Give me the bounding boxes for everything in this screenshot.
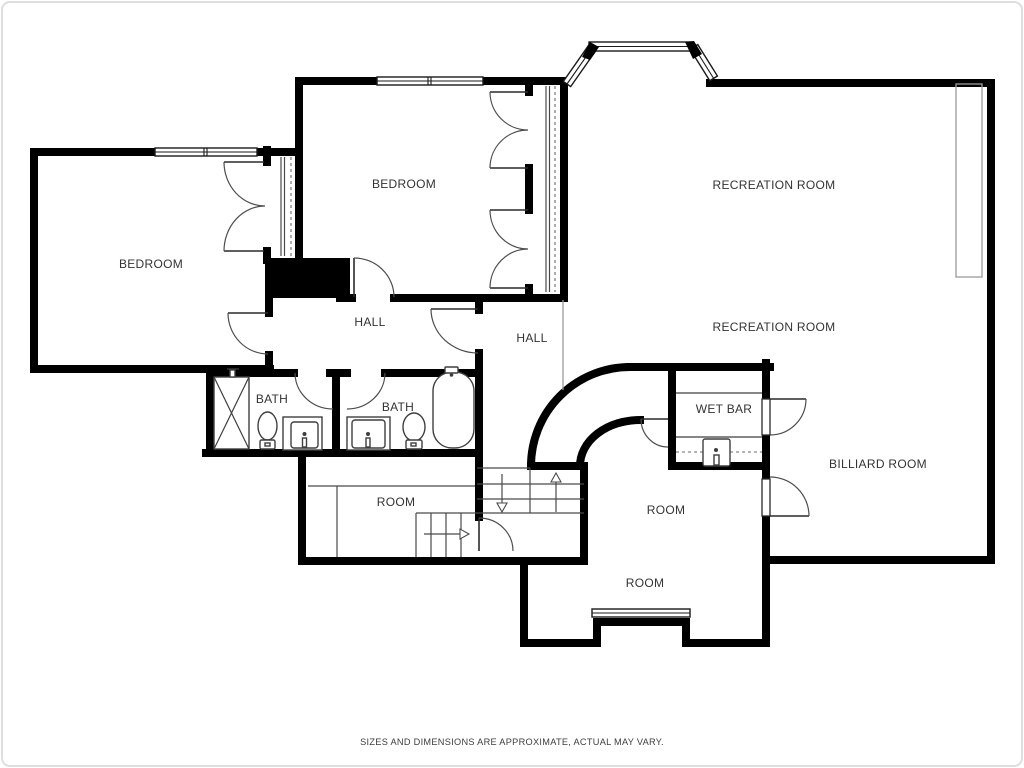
room-label-hall-east: HALL: [516, 331, 547, 345]
room-label-recreation-room-upper: RECREATION ROOM: [713, 178, 836, 192]
toilet-icon-west: [258, 412, 277, 449]
door-bath-east: [347, 373, 385, 409]
closet-double-door-north-upper: [490, 92, 528, 168]
room-label-room-west: ROOM: [377, 495, 416, 509]
walls: [34, 81, 991, 643]
room-label-bath-east: BATH: [382, 400, 414, 414]
room-label-room-south: ROOM: [626, 576, 665, 590]
window-west-bedroom: [155, 148, 257, 156]
door-billiard-lower: [762, 477, 809, 516]
door-bath-west: [295, 373, 333, 409]
closet-shelf-line-west: [281, 157, 285, 256]
sink-icon-east: [347, 417, 390, 450]
door-north-bedroom: [354, 258, 394, 297]
wall-curved-inner: [580, 420, 640, 466]
room-label-hall-west: HALL: [354, 315, 385, 329]
door-stair-landing: [479, 518, 513, 551]
closet-shelf-line-north: [546, 86, 550, 292]
wall-niche: [956, 84, 982, 277]
room-label-billiard-room: BILLIARD ROOM: [829, 457, 927, 471]
closet-double-door-west: [224, 162, 265, 251]
floor-plan-canvas: BEDROOM BEDROOM RECREATION ROOM RECREATI…: [0, 0, 1024, 768]
disclaimer-text: SIZES AND DIMENSIONS ARE APPROXIMATE, AC…: [360, 737, 664, 747]
window-south-room: [592, 609, 690, 617]
room-label-bath-west: BATH: [256, 392, 288, 406]
window-north-bedroom: [377, 77, 483, 85]
door-corridor: [641, 419, 668, 447]
stair-arrow-up-icon: [551, 473, 561, 482]
room-label-wet-bar: WET BAR: [696, 402, 753, 416]
solid-chase: [265, 258, 350, 298]
door-hall: [431, 309, 478, 353]
door-billiard-upper: [762, 399, 806, 435]
room-label-recreation-room-lower: RECREATION ROOM: [713, 320, 836, 334]
room-label-bedroom-north: BEDROOM: [372, 177, 436, 191]
closet-double-door-north-lower: [490, 210, 528, 288]
stair-arrow-right-icon: [460, 529, 469, 539]
wall-north-bedroom-left: [256, 81, 377, 152]
stair-treads-main: [477, 468, 584, 513]
bathtub-icon: [433, 367, 474, 448]
sink-icon-west: [283, 417, 322, 450]
bay-window-top: [589, 42, 693, 51]
room-label-room-center: ROOM: [647, 503, 686, 517]
room-label-bedroom-west: BEDROOM: [119, 257, 183, 271]
page-border: [2, 2, 1022, 766]
stairs-main: [477, 468, 584, 513]
toilet-icon-east: [403, 413, 425, 449]
stair-arrow-down-icon: [497, 503, 507, 512]
shower-icon: [214, 369, 249, 449]
door-west-bedroom: [228, 313, 268, 354]
